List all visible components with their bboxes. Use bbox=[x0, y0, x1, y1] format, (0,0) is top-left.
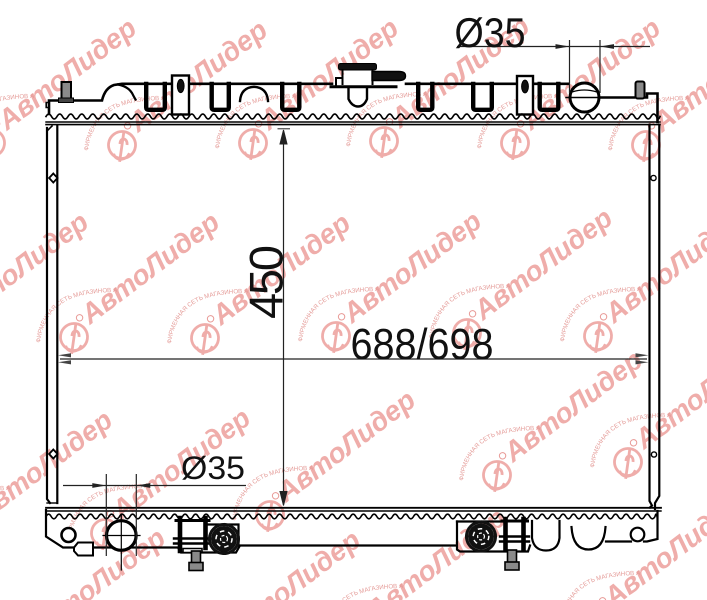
svg-text:Ø35: Ø35 bbox=[181, 450, 245, 486]
svg-text:688/698: 688/698 bbox=[351, 320, 494, 369]
svg-text:Ø35: Ø35 bbox=[455, 9, 526, 56]
svg-text:450: 450 bbox=[240, 245, 293, 319]
